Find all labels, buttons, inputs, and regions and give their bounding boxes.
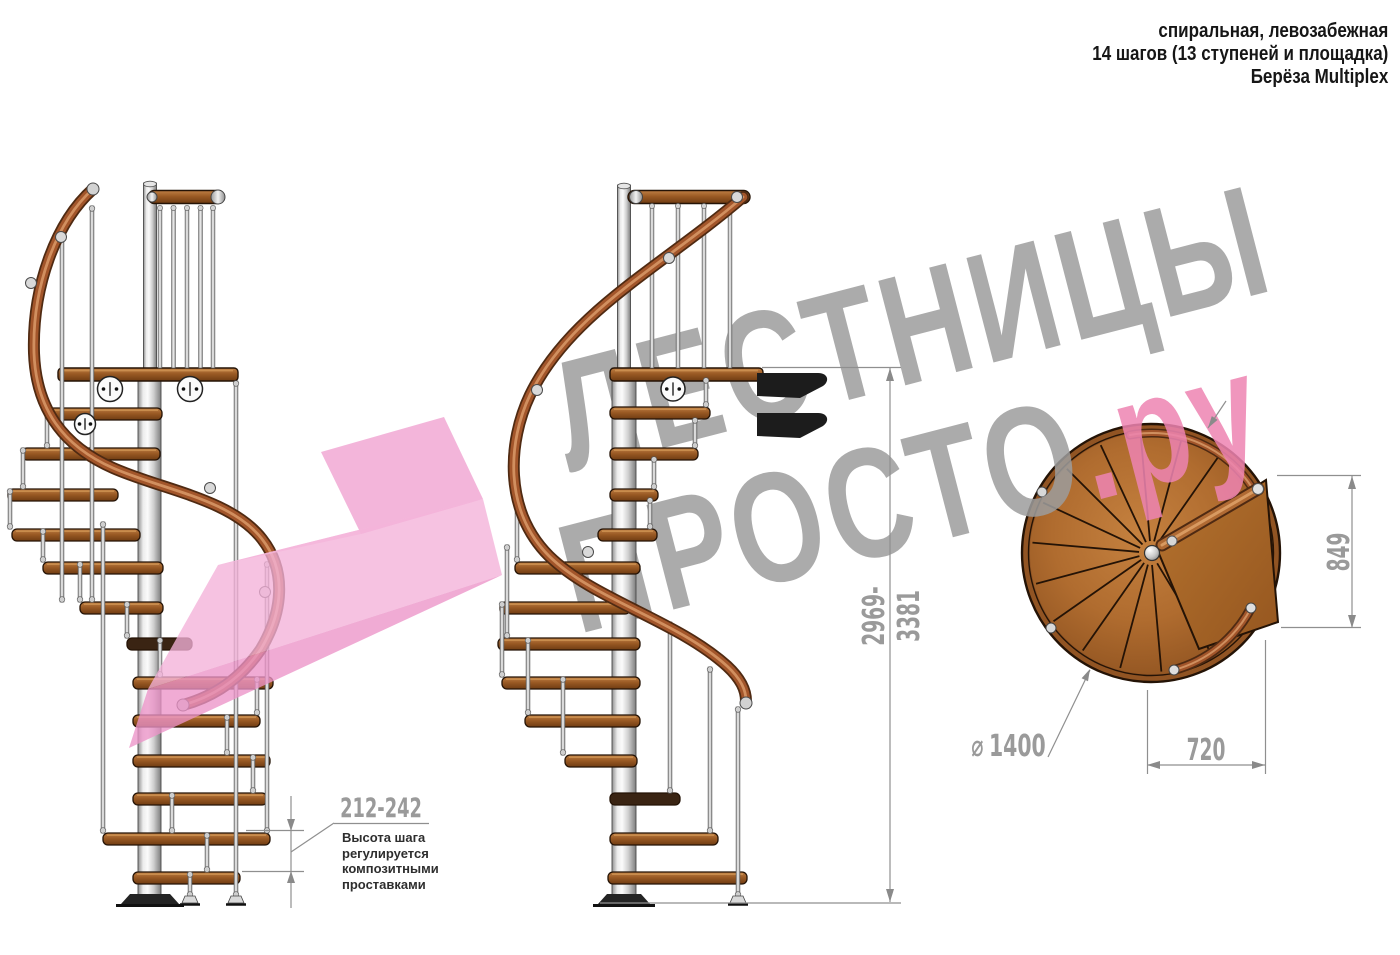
annotation-line: Высота шага bbox=[342, 830, 439, 846]
spec-line-type: спиральная, левозабежная bbox=[1092, 20, 1388, 43]
spec-line-material: Берёза Multiplex bbox=[1092, 66, 1388, 89]
spec-header: спиральная, левозабежная 14 шагов (13 ст… bbox=[1092, 20, 1388, 89]
annotation-line: проставками bbox=[342, 877, 439, 893]
dimension-arrows bbox=[287, 368, 1356, 902]
annotation-line: композитными bbox=[342, 861, 439, 877]
diameter-value: 1400 bbox=[989, 729, 1046, 764]
dimension-diameter-label: ⌀1400 bbox=[963, 729, 1055, 764]
technical-drawing-page: ЛЕСТНИЦЫ ПРОСТО.ру bbox=[0, 0, 1400, 955]
annotation-line: регулируется bbox=[342, 846, 439, 862]
dimension-step-height-label: 212-242 bbox=[338, 793, 424, 824]
dimension-total-height-label: 2969-3381 bbox=[857, 566, 887, 665]
dimension-landing-depth-label: 849 bbox=[1322, 502, 1352, 601]
step-height-annotation: Высота шага регулируется композитными пр… bbox=[342, 830, 439, 892]
diameter-symbol-icon: ⌀ bbox=[971, 729, 983, 764]
dimension-lines bbox=[242, 368, 1361, 909]
spec-line-steps: 14 шагов (13 ступеней и площадка) bbox=[1092, 43, 1388, 66]
dimension-graphics bbox=[0, 0, 1400, 955]
dimension-passage-width-label: 720 bbox=[1169, 733, 1243, 768]
